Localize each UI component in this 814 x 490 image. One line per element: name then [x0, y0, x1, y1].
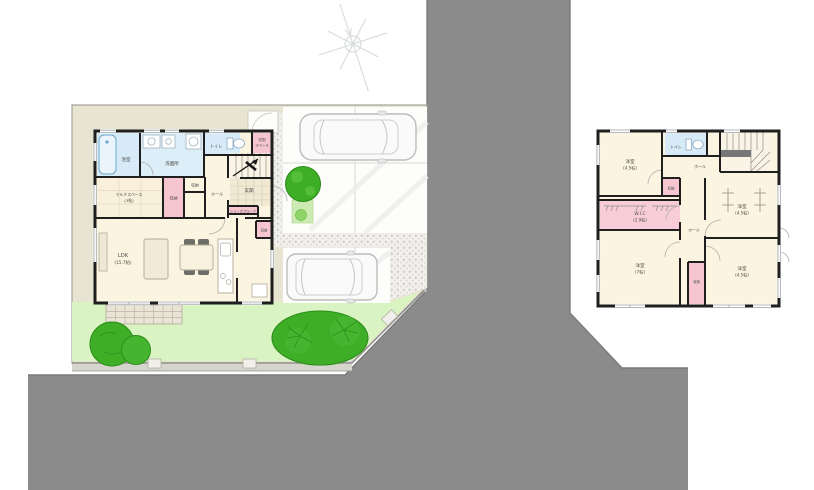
floor-plan-1f: 浴室 洗面所 トイレ 宅配 スペース マルチスペース (3帖) 収納 収納 ホー…: [93, 111, 287, 305]
room-label-toilet-2f: トイレ: [670, 145, 682, 150]
floor-plan-2f: 洋室 (4.5帖) トイレ ホール 収納 洋室 (4.5帖) W.I.C (2.…: [596, 129, 789, 308]
room-label-multi-1: マルチスペース: [116, 192, 143, 197]
bathtub-icon: [99, 135, 116, 174]
staircase-2f: [721, 132, 770, 171]
staircase-1f: [230, 153, 270, 178]
tree-garden-large: [272, 311, 368, 365]
kitchen-counter: [218, 239, 233, 293]
room-label-hall-upper: ホール: [694, 164, 706, 169]
terrace-deck: [106, 305, 182, 324]
floorplan-drawing: 浴室 洗面所 トイレ 宅配 スペース マルチスペース (3帖) 収納 収納 ホー…: [0, 0, 814, 490]
entrance-planting: [292, 200, 313, 223]
room-label-bath: 浴室: [121, 156, 131, 163]
room-label-bedroom-sw-1: 洋室: [635, 262, 645, 269]
room-label-shoe-closet: シューズクローク: [230, 209, 256, 214]
room-label-delivery-1: 宅配: [258, 137, 266, 142]
room-label-multi-2: (3帖): [124, 198, 134, 203]
room-label-bedroom-nw-1: 洋室: [625, 158, 635, 165]
room-label-storage-2f-a: 収納: [668, 186, 675, 191]
toilet-icon-1f: [227, 138, 245, 149]
room-label-wic-2: (2.9帖): [633, 217, 647, 223]
tree-entrance: [286, 167, 321, 202]
kitchen-island: [144, 239, 168, 279]
room-label-bedroom-e-1: 洋室: [737, 203, 747, 210]
site-floorplan-canvas: 浴室 洗面所 トイレ 宅配 スペース マルチスペース (3帖) 収納 収納 ホー…: [0, 0, 814, 490]
room-label-ldk-2: (15.7帖): [114, 259, 132, 266]
room-label-delivery-2: スペース: [255, 143, 269, 148]
pantry-cabinet: [252, 284, 267, 297]
room-label-ldk-1: LDK: [118, 253, 129, 259]
room-label-bedroom-se-1: 洋室: [737, 265, 747, 272]
room-label-bedroom-se-2: (4.5帖): [735, 272, 749, 278]
room-label-bedroom-sw-2: (7帖): [635, 269, 645, 275]
washer-icon: [186, 134, 201, 149]
room-label-bedroom-e-2: (4.5帖): [735, 210, 749, 216]
room-label-storage-b: 収納: [191, 183, 199, 188]
room-label-wic-1: W.I.C: [634, 211, 646, 217]
room-label-washroom: 洗面所: [165, 160, 179, 167]
room-label-hall-1f: ホール: [211, 192, 223, 197]
parked-car-2: [287, 251, 377, 303]
tv-board: [99, 233, 107, 271]
room-label-bedroom-nw-2: (4.5帖): [623, 165, 637, 171]
room-label-entrance: 玄関: [244, 187, 254, 194]
room-label-storage-a: 収納: [170, 195, 178, 201]
washbasin-icon: [143, 135, 175, 148]
parked-car-1: [300, 111, 416, 163]
room-label-hall-lower: ホール: [688, 228, 700, 233]
room-label-storage-2f-b: 収納: [693, 279, 700, 284]
room-label-storage-c: 収納: [261, 228, 268, 233]
room-label-toilet-1f: トイレ: [210, 144, 223, 149]
